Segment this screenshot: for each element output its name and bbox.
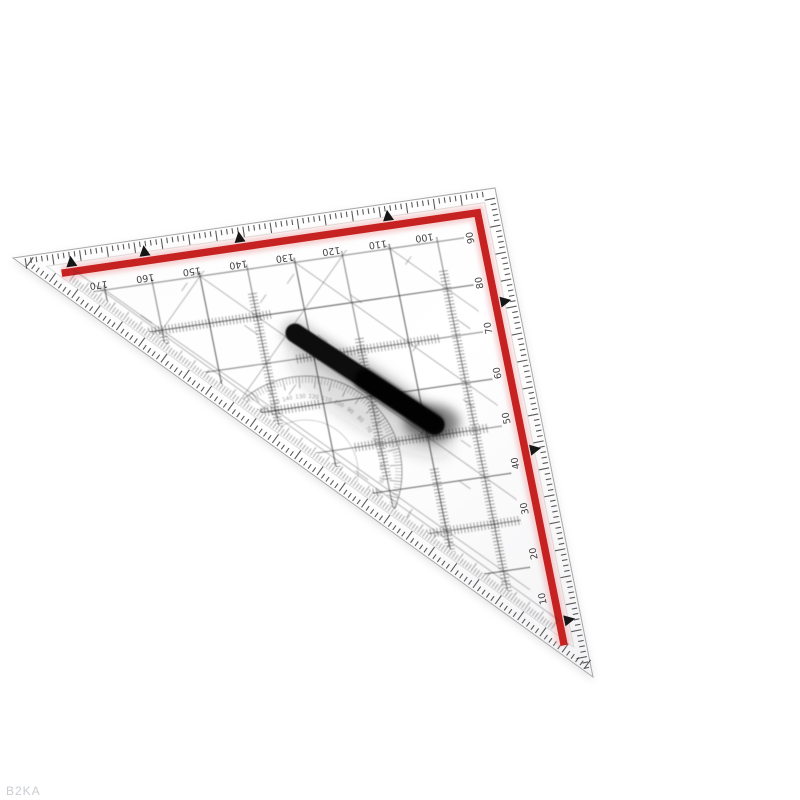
svg-text:70: 70 — [482, 321, 495, 335]
watermark-text: B2KA — [6, 784, 41, 798]
product-photo-stage: 1020304050607080901001101201301401501601… — [0, 0, 800, 800]
drafting-triangle-photo: 1020304050607080901001101201301401501601… — [0, 0, 800, 800]
svg-text:40: 40 — [509, 456, 522, 470]
svg-text:130: 130 — [295, 394, 306, 401]
svg-text:80: 80 — [473, 276, 486, 290]
svg-text:60: 60 — [491, 366, 504, 380]
svg-text:30: 30 — [518, 501, 531, 515]
svg-text:30: 30 — [377, 476, 384, 484]
svg-text:50: 50 — [500, 411, 513, 425]
svg-text:40: 40 — [378, 463, 385, 471]
svg-text:10: 10 — [537, 592, 550, 606]
svg-text:20: 20 — [527, 546, 540, 560]
svg-text:90: 90 — [464, 231, 477, 245]
